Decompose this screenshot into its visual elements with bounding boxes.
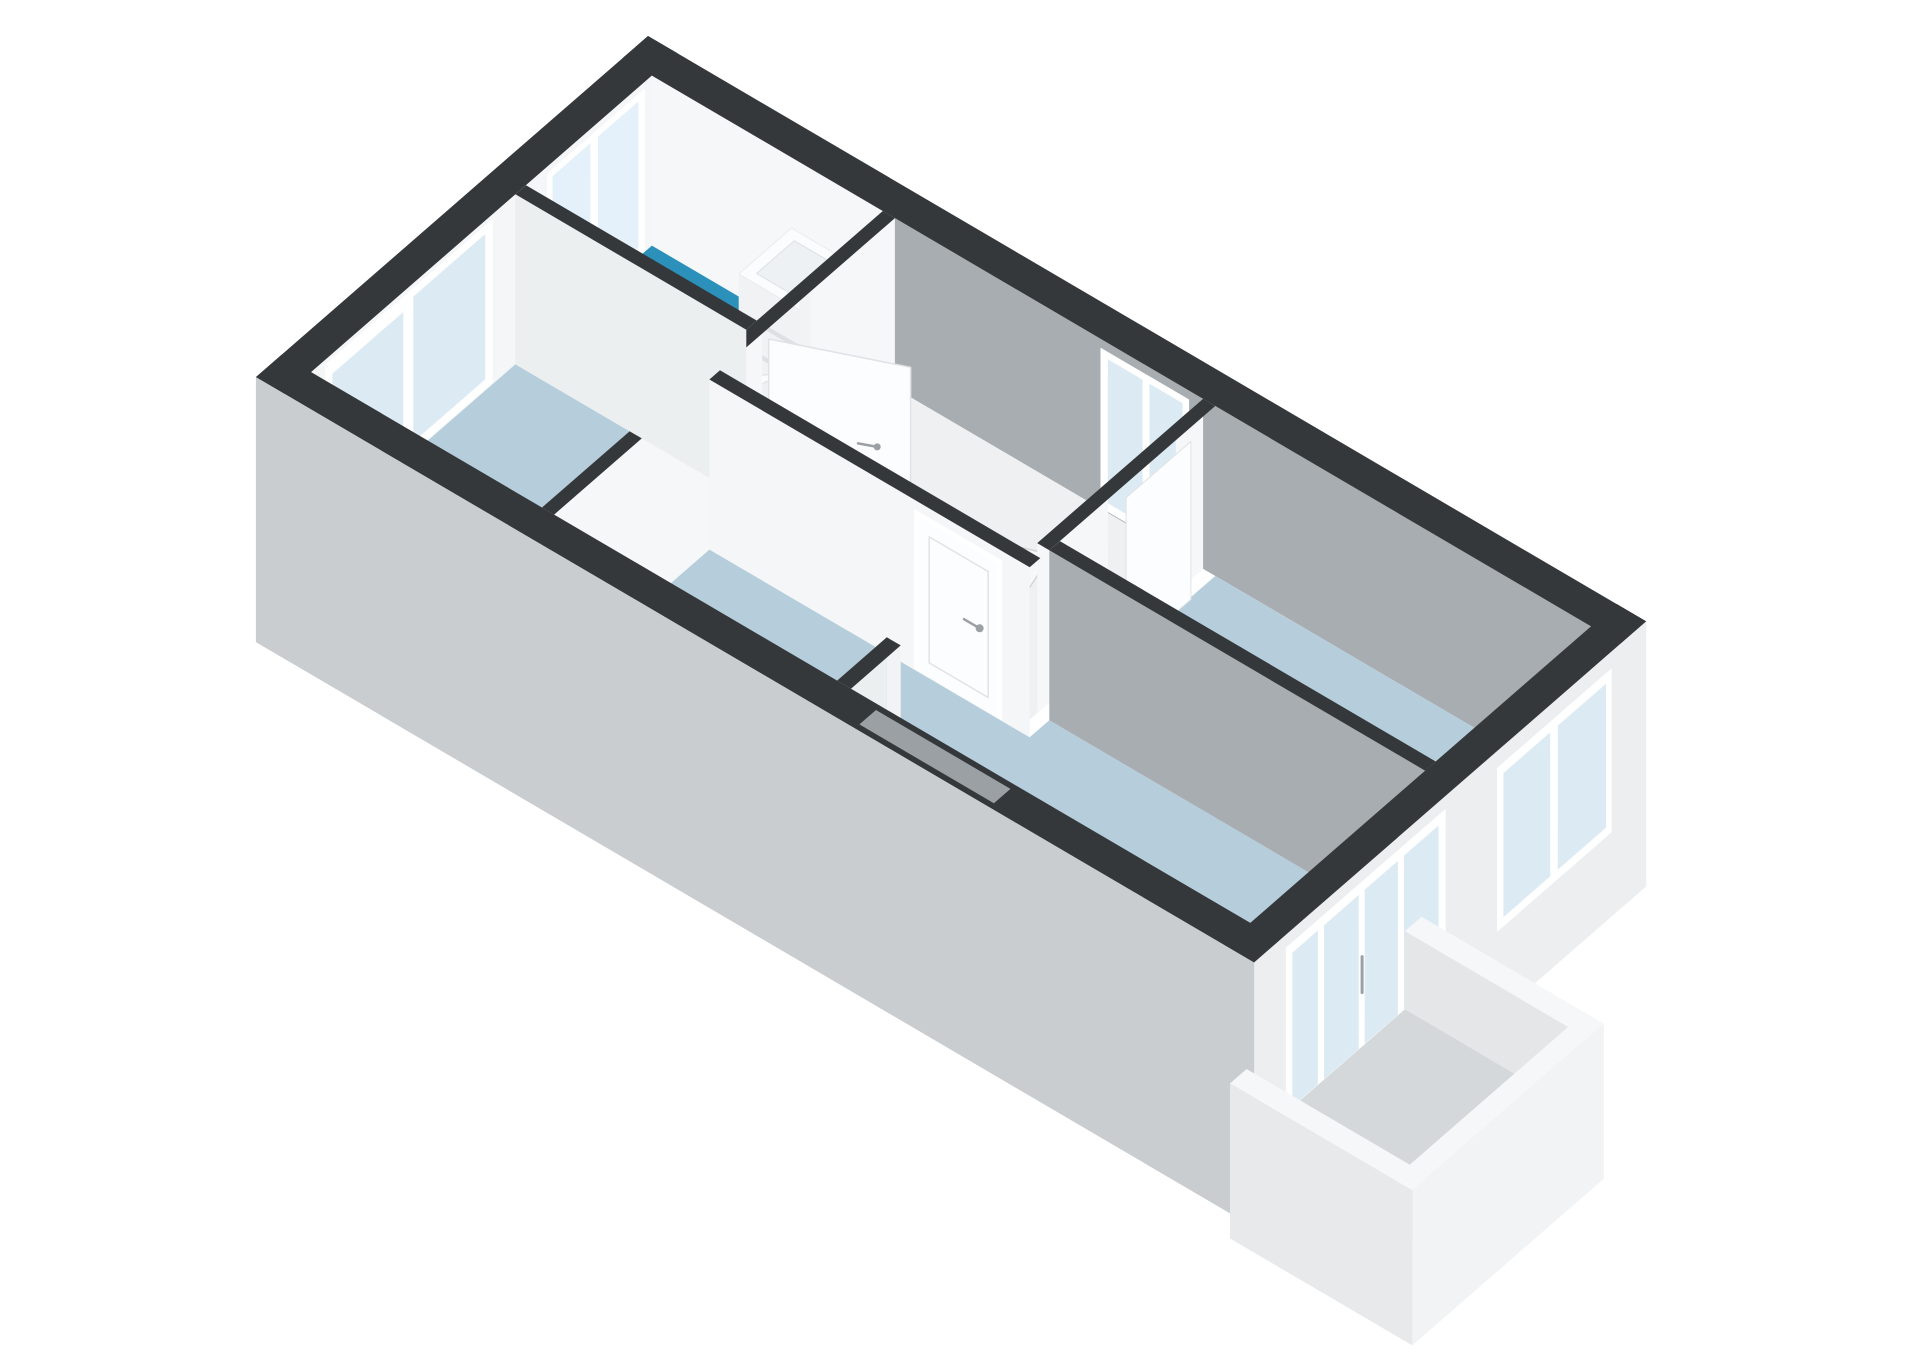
balcony-glass-pane-3 [1324, 895, 1359, 1079]
floorplan-3d-view [0, 0, 1920, 1358]
balcony-glass-pane-4 [1292, 930, 1318, 1106]
balcony-glass-pane-2 [1365, 861, 1398, 1044]
right-room-window-mullion [1550, 726, 1558, 877]
floorplan-svg [0, 0, 1920, 1358]
